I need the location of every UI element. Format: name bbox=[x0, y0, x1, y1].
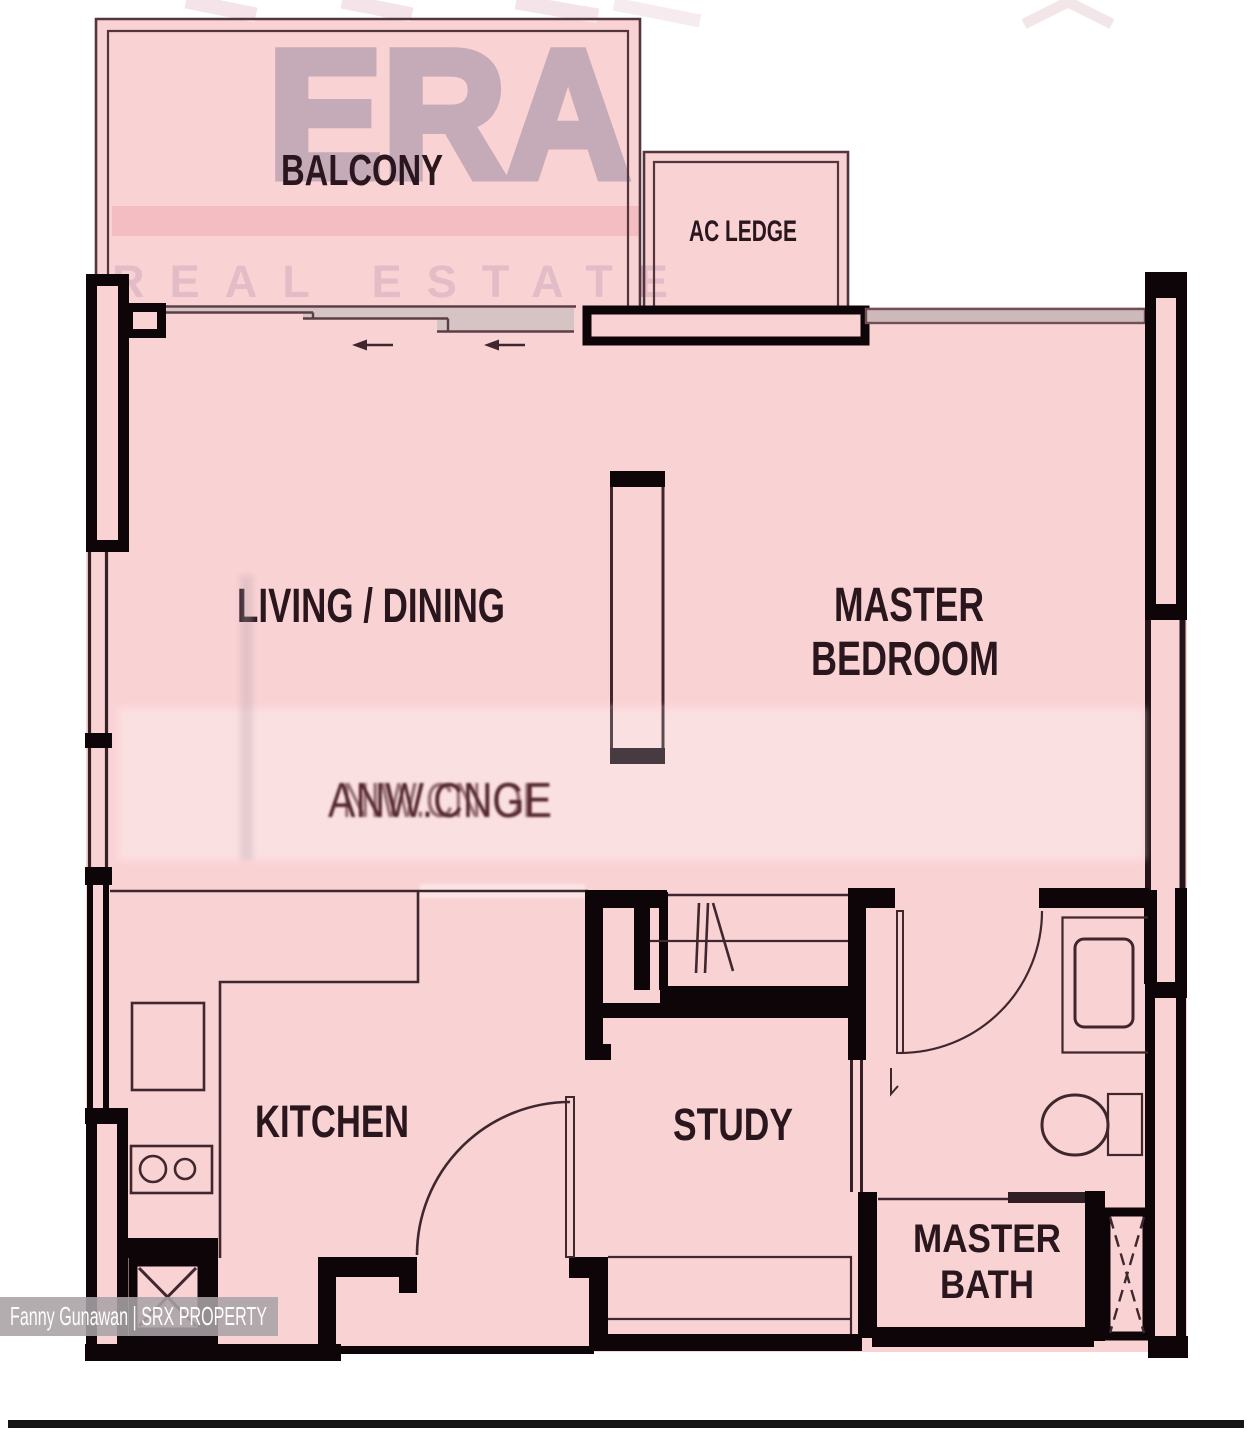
svg-text:BATH: BATH bbox=[940, 1263, 1034, 1307]
svg-text:MASTER: MASTER bbox=[834, 579, 984, 632]
svg-text:BALCONY: BALCONY bbox=[281, 146, 443, 195]
svg-text:STUDY: STUDY bbox=[673, 1099, 793, 1150]
svg-text:LIVING / DINING: LIVING / DINING bbox=[237, 580, 505, 633]
svg-text:MASTER: MASTER bbox=[913, 1217, 1061, 1261]
svg-text:KITCHEN: KITCHEN bbox=[255, 1096, 409, 1147]
svg-text:NIW.CNIOE: NIW.CNIOE bbox=[342, 774, 548, 828]
svg-text:REAL ESTATE: REAL ESTATE bbox=[112, 256, 668, 307]
svg-text:BEDROOM: BEDROOM bbox=[811, 633, 999, 686]
svg-text:AC LEDGE: AC LEDGE bbox=[689, 215, 797, 248]
svg-text:Fanny Gunawan | SRX PROPERTY: Fanny Gunawan | SRX PROPERTY bbox=[10, 1301, 267, 1331]
